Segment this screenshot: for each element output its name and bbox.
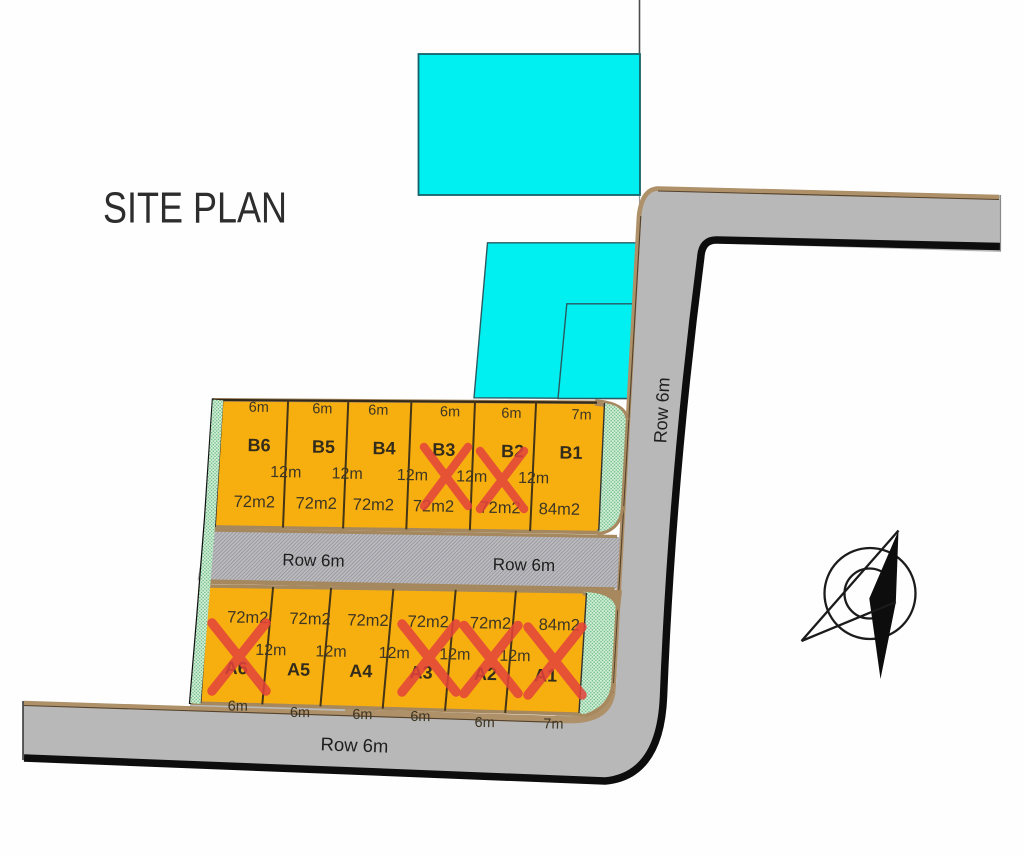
svg-text:6m: 6m — [368, 402, 388, 418]
svg-text:A4: A4 — [349, 661, 372, 681]
svg-text:B5: B5 — [312, 437, 335, 457]
svg-text:72m2: 72m2 — [234, 493, 276, 512]
svg-text:6m: 6m — [290, 705, 310, 721]
svg-text:B6: B6 — [247, 435, 270, 455]
svg-text:6m: 6m — [228, 698, 248, 714]
svg-text:SITE PLAN: SITE PLAN — [103, 184, 287, 233]
svg-text:Row 6m: Row 6m — [282, 550, 345, 570]
svg-text:72m2: 72m2 — [470, 614, 512, 633]
svg-text:12m: 12m — [397, 467, 428, 484]
svg-text:6m: 6m — [501, 406, 521, 422]
svg-text:12m: 12m — [255, 642, 286, 659]
svg-text:12m: 12m — [456, 468, 487, 485]
svg-text:6m: 6m — [440, 404, 460, 420]
svg-text:12m: 12m — [331, 465, 362, 482]
svg-text:Row 6m: Row 6m — [320, 733, 389, 756]
svg-text:12m: 12m — [270, 464, 301, 481]
svg-text:72m2: 72m2 — [289, 610, 331, 629]
svg-text:7m: 7m — [571, 407, 591, 423]
svg-text:12m: 12m — [379, 645, 410, 662]
svg-text:12m: 12m — [315, 643, 346, 660]
svg-text:6m: 6m — [312, 401, 332, 417]
svg-text:72m2: 72m2 — [347, 611, 389, 630]
svg-text:12m: 12m — [439, 646, 470, 663]
svg-text:12m: 12m — [518, 470, 549, 487]
svg-text:72m2: 72m2 — [295, 494, 337, 513]
svg-text:A5: A5 — [287, 659, 310, 679]
svg-text:Row 6m: Row 6m — [493, 555, 556, 575]
svg-text:Row 6m: Row 6m — [650, 377, 673, 444]
svg-text:B4: B4 — [372, 438, 395, 458]
svg-text:6m: 6m — [249, 400, 269, 416]
svg-text:84m2: 84m2 — [539, 500, 581, 519]
svg-text:7m: 7m — [543, 716, 563, 732]
svg-text:6m: 6m — [410, 709, 430, 725]
svg-text:6m: 6m — [474, 715, 494, 731]
svg-text:72m2: 72m2 — [407, 613, 449, 632]
svg-text:6m: 6m — [352, 707, 372, 723]
svg-text:B1: B1 — [559, 443, 582, 463]
svg-text:72m2: 72m2 — [353, 496, 395, 515]
